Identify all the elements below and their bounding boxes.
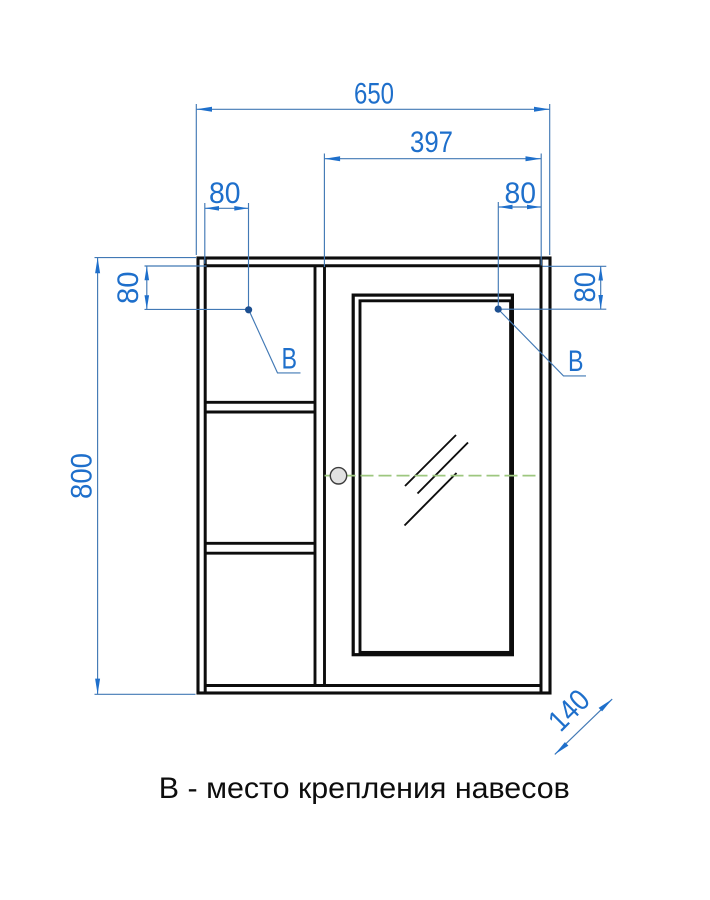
svg-text:В - место крепления навесов: В - место крепления навесов — [159, 772, 570, 805]
svg-text:B: B — [568, 345, 584, 378]
svg-text:80: 80 — [209, 177, 241, 210]
svg-text:B: B — [282, 343, 298, 376]
svg-text:80: 80 — [505, 177, 537, 210]
svg-text:80: 80 — [569, 272, 602, 303]
svg-text:80: 80 — [112, 272, 145, 305]
svg-text:397: 397 — [410, 126, 453, 159]
svg-text:800: 800 — [65, 453, 98, 499]
svg-text:650: 650 — [354, 78, 394, 111]
